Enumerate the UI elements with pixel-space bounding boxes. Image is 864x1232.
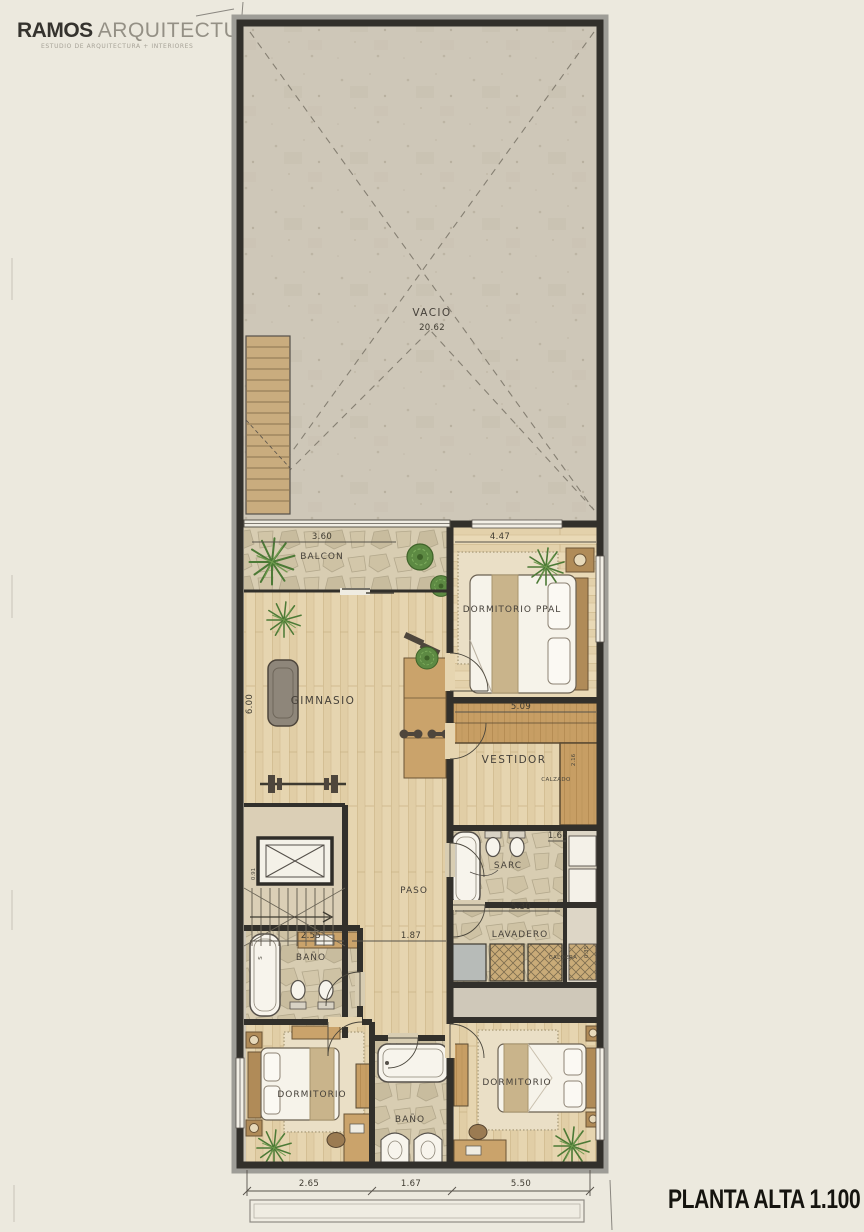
chair (327, 1133, 345, 1148)
dorm-der-label: DORMITORIO (482, 1078, 551, 1088)
vacio-area-value: 20.62 (419, 323, 445, 333)
bano-centro-label: BAÑO (395, 1114, 425, 1125)
balcon-label: BALCON (300, 552, 343, 562)
paso-label: PASO (400, 886, 428, 896)
vacio-label: VACIO (412, 307, 451, 319)
vestidor-note: CALZADO (541, 777, 571, 783)
bano-izq-dim: 2.55 (301, 931, 321, 941)
lavadero-machines (452, 944, 562, 981)
stairs-dim: 0.91 (251, 868, 257, 880)
bottom-dim-3: 5.50 (511, 1179, 531, 1189)
upper-stairs (246, 336, 290, 514)
room-vacio: VACIO 20.62 (242, 25, 598, 522)
lavadero-label: LAVADERO (492, 930, 549, 940)
dorm-ppal-dim: 4.47 (490, 532, 510, 542)
paso-dim: 1.87 (401, 931, 421, 941)
vestidor-dim-side: 2.16 (571, 753, 577, 766)
lavadero-dim: 5.30 (511, 902, 531, 912)
vestidor-label: VESTIDOR (482, 754, 547, 766)
planter-below (250, 1200, 584, 1222)
dorm-izq-label: DORMITORIO (277, 1090, 346, 1100)
balcon-dim: 3.60 (312, 532, 332, 542)
desk (344, 1114, 370, 1166)
lavadero-note: CALDERA (549, 955, 578, 961)
gimnasio-label: GIMNASIO (291, 695, 356, 707)
gym-shelf (404, 658, 446, 778)
bano-izq-label: BAÑO (296, 952, 326, 963)
floor-plan: VACIO 20.62 (0, 0, 864, 1232)
elevator (258, 838, 332, 884)
lavadero-dim-side: 0.35 (584, 945, 590, 958)
tub-mark: S (258, 956, 264, 960)
dorm-ppal-furniture (458, 548, 594, 693)
bed-headboard (248, 1052, 261, 1118)
gimnasio-dim: 6.00 (245, 694, 255, 714)
sarc-label: SARC (494, 861, 522, 871)
paper-artifacts (12, 258, 14, 1222)
balcony-railing (244, 520, 450, 527)
bottom-dim-1: 2.65 (299, 1179, 319, 1189)
vestidor-dim-top: 5.09 (511, 702, 531, 712)
dorm-ppal-label: DORMITORIO PPAL (463, 605, 562, 615)
sarc-dim: 1.65 (548, 831, 568, 841)
bottom-dim-2: 1.67 (401, 1179, 421, 1189)
chair (469, 1125, 487, 1140)
